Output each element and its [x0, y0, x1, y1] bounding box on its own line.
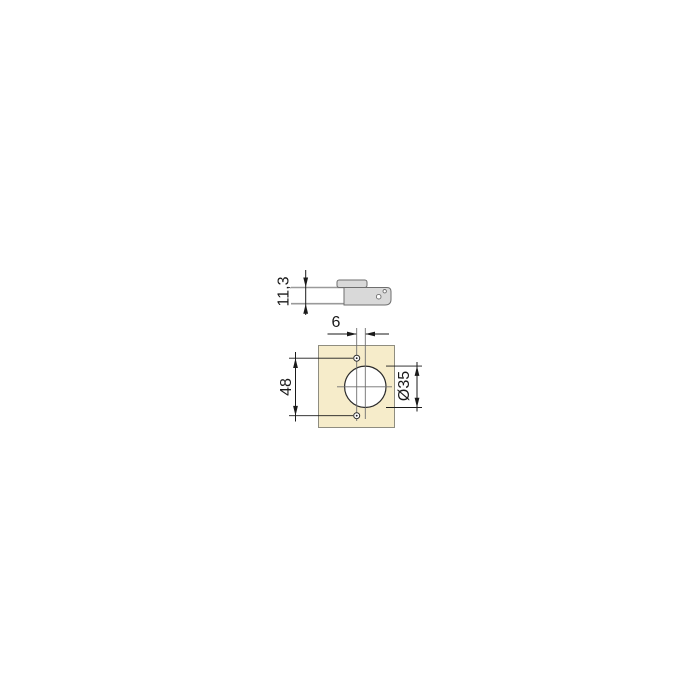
dim-48-arrow-up [293, 358, 298, 368]
screw-hole-bottom-center-dot [356, 415, 358, 417]
dim-11-3-label: 11,3 [276, 276, 293, 306]
hinge-technical-drawing-page: 11,3 [0, 0, 700, 700]
dim-35-arrow-up [415, 366, 420, 376]
cup-body-hole-small [383, 290, 386, 293]
dim-11-3-arrow-up [303, 304, 308, 314]
hinge-drawing-canvas: 11,3 [0, 0, 700, 700]
screw-hole-top [354, 355, 360, 361]
side-view: 11,3 [276, 270, 392, 315]
dim-6: 6 [328, 314, 390, 336]
dim-35-arrow-down [415, 398, 420, 408]
hinge-cup-flange [337, 280, 367, 288]
screw-hole-bottom [354, 413, 360, 419]
dim-11-3-arrow-down [303, 278, 308, 288]
dim-6-label: 6 [332, 314, 341, 331]
dim-48-arrow-down [293, 406, 298, 416]
plan-view: 6 48 Ø35 [278, 314, 422, 428]
dim-48-label: 48 [278, 378, 295, 396]
cup-body-hole-large [376, 294, 381, 299]
dim-6-arrow-right [347, 332, 357, 337]
screw-hole-top-center-dot [356, 357, 358, 359]
dim-35-label: Ø35 [396, 371, 413, 401]
dim-6-arrow-left [365, 332, 375, 337]
